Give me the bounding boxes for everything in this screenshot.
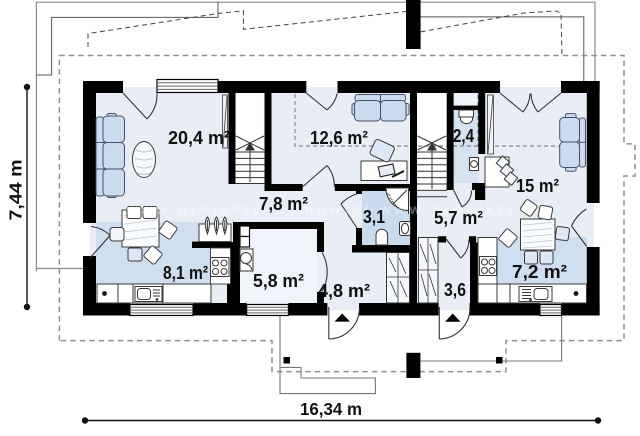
svg-text:5,8 m²: 5,8 m² [253, 270, 304, 291]
svg-text:15 m²: 15 m² [516, 175, 559, 196]
svg-text:2,4: 2,4 [453, 125, 475, 146]
svg-text:12,6 m²: 12,6 m² [310, 127, 368, 148]
svg-text:16,34 m: 16,34 m [300, 399, 362, 419]
svg-text:7,2 m²: 7,2 m² [512, 261, 567, 282]
svg-text:4,8 m²: 4,8 m² [318, 280, 370, 301]
svg-text:20,4 m²: 20,4 m² [168, 127, 230, 148]
svg-text:7,8 m²: 7,8 m² [259, 193, 308, 214]
svg-text:3,1: 3,1 [363, 206, 385, 227]
svg-text:7,44 m: 7,44 m [6, 160, 26, 221]
svg-text:5,7 m²: 5,7 m² [434, 207, 483, 228]
svg-text:8,1 m²: 8,1 m² [163, 262, 208, 283]
svg-text:3,6: 3,6 [444, 279, 466, 300]
